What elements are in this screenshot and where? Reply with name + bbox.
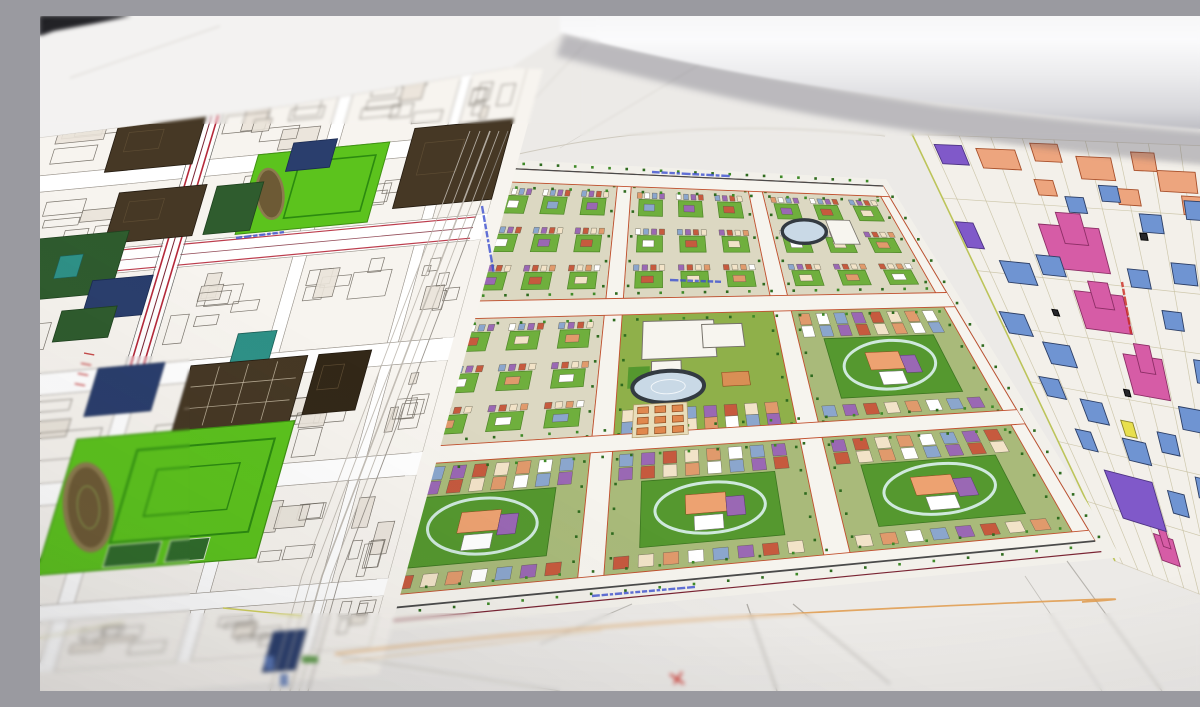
building-salmon	[976, 148, 1022, 170]
photo-of-urban-plan-blueprints	[40, 16, 1200, 691]
scene-canvas	[40, 16, 1200, 691]
building-blue	[1184, 201, 1200, 221]
building-blue	[1098, 185, 1120, 202]
building-salmon	[1076, 156, 1116, 180]
building-blue	[1127, 269, 1151, 289]
building-salmon	[1157, 170, 1198, 193]
building-blue	[1162, 311, 1184, 332]
parcel-darkgreen	[52, 306, 117, 342]
building-blue	[1139, 214, 1164, 234]
parcel-navy	[286, 139, 338, 172]
building-blue	[1171, 263, 1198, 286]
building-dark	[1140, 233, 1148, 240]
